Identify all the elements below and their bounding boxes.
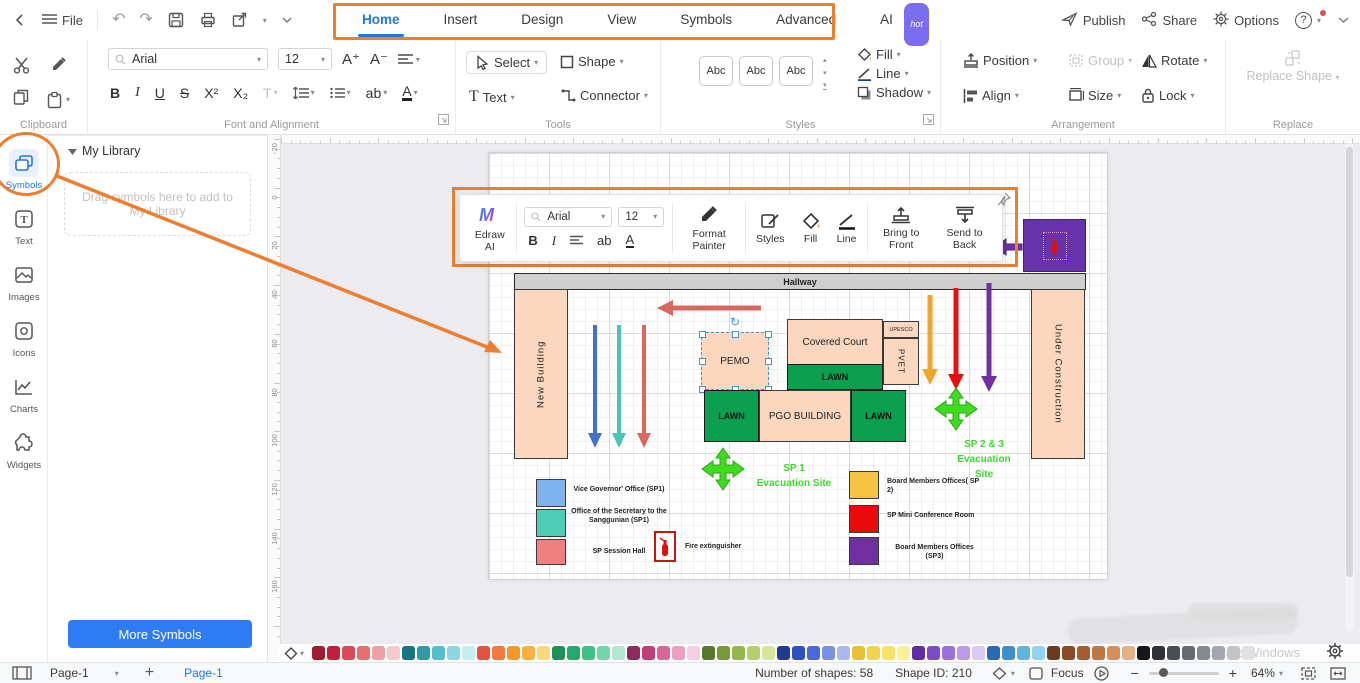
float-fill-button[interactable]: Fill — [793, 199, 829, 257]
shadow-button[interactable]: Shadow▾ — [857, 85, 931, 100]
subscript-button[interactable]: X₂ — [233, 85, 248, 101]
align-shapes-button[interactable]: Align▾ — [963, 88, 1019, 103]
hamburger-icon — [42, 13, 57, 28]
page-tab[interactable]: Page-1 — [184, 666, 223, 680]
fill-icon — [284, 647, 298, 660]
styles-expand-icon[interactable] — [923, 112, 934, 130]
collapse-window-icon[interactable] — [1337, 15, 1350, 25]
shape-id: Shape ID: 210 — [895, 666, 972, 680]
selection-handle[interactable] — [699, 358, 706, 365]
bring-to-front-icon — [890, 206, 912, 224]
horizontal-ruler — [281, 135, 1360, 144]
tab-view[interactable]: View — [585, 0, 658, 40]
selection-handle[interactable] — [699, 331, 706, 338]
legend-swatch-vice-governor[interactable] — [536, 479, 566, 507]
charts-icon — [9, 373, 39, 401]
font-section-label: Font and Alignment — [88, 119, 455, 131]
color-swatch[interactable] — [312, 646, 325, 660]
tools-section: Select▾ Shape▾ T Text▾ Connector▾ Tools — [456, 40, 661, 135]
images-icon — [9, 261, 39, 289]
color-swatch[interactable] — [417, 646, 430, 660]
color-swatch[interactable] — [612, 646, 625, 660]
rotate-handle-icon[interactable]: ↻ — [730, 315, 740, 329]
float-align-button[interactable] — [570, 232, 583, 250]
float-char-spacing-button[interactable]: ab — [597, 233, 611, 248]
top-bar: File ↶ ↷ ▾ Home Insert Design View Symbo… — [0, 0, 1360, 40]
pin-icon[interactable] — [997, 192, 1011, 211]
color-swatch[interactable] — [1017, 646, 1030, 660]
library-header[interactable]: My Library — [48, 136, 267, 158]
color-swatch[interactable] — [1227, 646, 1240, 660]
notification-dot — [1320, 10, 1326, 16]
export-caret-icon[interactable]: ▾ — [263, 16, 267, 25]
font-family-select[interactable]: Arial▾ — [108, 48, 268, 70]
color-swatch[interactable] — [927, 646, 940, 660]
color-swatch[interactable] — [1047, 646, 1060, 660]
style-scroll-up-icon[interactable]: ▴ — [823, 56, 827, 64]
sidebar-item-charts[interactable]: Charts — [0, 373, 48, 415]
arrow-salmon-down[interactable] — [636, 323, 652, 449]
legend-label-vice-governor: Vice Governor' Office (SP1) — [569, 485, 669, 494]
color-swatch[interactable] — [807, 646, 820, 660]
legend-swatch-secretary[interactable] — [536, 509, 566, 537]
align-icon — [963, 89, 978, 103]
page-overview-icon[interactable] — [12, 666, 32, 680]
color-swatch[interactable] — [852, 646, 865, 660]
replace-shape-button[interactable]: Replace Shape ▾ — [1226, 50, 1360, 85]
theme-icon[interactable]: ▾ — [992, 667, 1015, 680]
color-swatch[interactable] — [357, 646, 370, 660]
arrow-amber-down[interactable] — [921, 293, 939, 387]
page-select[interactable]: Page-1▾ — [50, 666, 119, 680]
shape-lawn-left[interactable]: LAWN — [704, 390, 759, 442]
color-swatch[interactable] — [507, 646, 520, 660]
zoom-slider-knob[interactable] — [1159, 668, 1168, 677]
selection-handle[interactable] — [732, 331, 739, 338]
replace-shape-icon — [1284, 50, 1302, 66]
color-swatch[interactable] — [672, 646, 685, 660]
shape-pemo-selected[interactable]: PEMO ↻ — [701, 332, 769, 390]
text-sp23-evacuation-site[interactable]: SP 2 & 3EvacuationSite — [929, 437, 1039, 482]
library-dropzone[interactable]: Drag symbols here to add to My Library — [64, 172, 251, 236]
hot-badge: hot — [904, 3, 929, 46]
arrow-blue-down[interactable] — [587, 323, 603, 449]
float-italic-button[interactable]: I — [552, 233, 556, 249]
color-swatch[interactable] — [1092, 646, 1105, 660]
color-swatch[interactable] — [387, 646, 400, 660]
superscript-button[interactable]: X² — [204, 85, 218, 101]
fill-button[interactable]: Fill▾ — [857, 47, 931, 62]
strikethrough-button[interactable]: S — [180, 85, 189, 101]
zoom-in-button[interactable]: + — [1229, 665, 1237, 681]
arrangement-section: Position▾ Group▾ Rotate▾ Align▾ Size▾ Lo… — [941, 40, 1226, 135]
replace-section: Replace Shape ▾ Replace — [1226, 40, 1360, 135]
align-button[interactable]: ▾ — [398, 53, 420, 65]
app-window: File ↶ ↷ ▾ Home Insert Design View Symbo… — [0, 0, 1360, 683]
file-menu[interactable]: File — [42, 13, 83, 28]
tab-symbols[interactable]: Symbols — [658, 0, 754, 40]
float-format-painter-button[interactable]: Format Painter — [675, 199, 743, 257]
color-swatch[interactable] — [402, 646, 415, 660]
sidebar-item-symbols[interactable]: Symbols — [0, 149, 48, 191]
publish-button[interactable]: Publish — [1061, 11, 1126, 30]
fit-page-icon[interactable] — [1301, 667, 1316, 680]
selection-handle[interactable] — [765, 358, 772, 365]
svg-text:M: M — [479, 205, 495, 225]
legend-label-fire-extinguisher: Fire extinguisher — [685, 542, 765, 551]
character-spacing-button[interactable]: ab▾ — [366, 85, 388, 101]
increase-font-button[interactable]: A⁺ — [342, 50, 360, 68]
color-swatch[interactable] — [342, 646, 355, 660]
fill-icon — [857, 48, 872, 62]
text-color-button[interactable]: T▾ — [263, 85, 278, 101]
legend-swatch-session-hall[interactable] — [536, 539, 566, 565]
color-swatch[interactable] — [627, 646, 640, 660]
vertical-ruler: -20020406080100120140160 — [268, 135, 281, 662]
arrow-red-down[interactable] — [947, 286, 965, 392]
connector-icon — [560, 88, 576, 103]
color-swatch[interactable] — [447, 646, 460, 660]
float-styles-button[interactable]: Styles — [748, 199, 793, 257]
tab-insert[interactable]: Insert — [422, 0, 500, 40]
underline-button[interactable]: U — [155, 85, 165, 101]
help-caret-icon: ▾ — [1317, 16, 1321, 25]
shape-icon — [560, 55, 574, 69]
color-swatch[interactable] — [957, 646, 970, 660]
color-swatch[interactable] — [642, 646, 655, 660]
style-more-icon[interactable]: ▾ — [823, 81, 827, 90]
tab-advanced[interactable]: Advanced — [754, 0, 858, 40]
text-icon: T — [9, 205, 39, 233]
tab-ai[interactable]: AIhot — [858, 0, 915, 40]
color-swatch[interactable] — [912, 646, 925, 660]
edraw-ai-button[interactable]: M Edraw AI — [466, 199, 514, 257]
styles-section: Abc Abc Abc ▴ ▾ ▾ Fill▾ Line▾ Shadow▾ St… — [661, 40, 941, 135]
legend-label-board-sp2: Board Members Offices( SP 2) — [887, 477, 982, 495]
rotate-icon — [1141, 54, 1157, 68]
zoom-out-button[interactable]: − — [1131, 665, 1139, 681]
color-swatch[interactable] — [597, 646, 610, 660]
status-bar: Page-1▾ + Page-1 Number of shapes: 58 Sh… — [0, 662, 1360, 683]
decrease-font-button[interactable]: A⁻ — [370, 50, 388, 68]
color-swatch[interactable] — [552, 646, 565, 660]
italic-button[interactable]: I — [135, 85, 140, 101]
color-swatch[interactable] — [942, 646, 955, 660]
print-icon[interactable] — [199, 11, 217, 29]
float-font-size-select[interactable]: 12▾ — [618, 207, 664, 227]
shape-lawn-strip[interactable]: LAWN — [787, 364, 883, 390]
select-tool[interactable]: Select▾ — [466, 51, 547, 74]
shape-tool[interactable]: Shape▾ — [560, 54, 624, 69]
color-swatch[interactable] — [537, 646, 550, 660]
line-icon — [837, 212, 857, 230]
color-swatch[interactable] — [1107, 646, 1120, 660]
redo-icon[interactable]: ↷ — [139, 12, 152, 28]
color-swatch[interactable] — [1122, 646, 1135, 660]
sidebar-item-images[interactable]: Images — [0, 261, 48, 303]
color-swatch[interactable] — [1002, 646, 1015, 660]
color-swatch[interactable] — [987, 646, 1000, 660]
share-button[interactable]: Share — [1141, 11, 1197, 30]
icons-icon — [9, 317, 39, 345]
save-icon[interactable] — [167, 11, 185, 29]
color-swatch[interactable] — [792, 646, 805, 660]
color-swatch[interactable] — [462, 646, 475, 660]
file-label: File — [62, 13, 83, 28]
color-swatch[interactable] — [747, 646, 760, 660]
line-spacing-button[interactable]: ▾ — [293, 87, 315, 99]
color-swatch[interactable] — [777, 646, 790, 660]
color-swatch[interactable] — [837, 646, 850, 660]
sidebar-item-widgets[interactable]: Widgets — [0, 429, 48, 471]
gear-icon — [1213, 11, 1229, 30]
bullet-list-button[interactable]: ▾ — [330, 87, 351, 99]
color-swatch[interactable] — [1032, 646, 1045, 660]
search-icon — [115, 54, 126, 65]
selection-handle[interactable] — [765, 331, 772, 338]
color-swatches — [312, 646, 1257, 660]
help-button[interactable]: ? ▾ — [1295, 12, 1321, 29]
color-swatch[interactable] — [867, 646, 880, 660]
connector-tool[interactable]: Connector▾ — [560, 88, 648, 103]
shape-covered-court[interactable]: Covered Court — [787, 319, 883, 366]
lock-button[interactable]: Lock▾ — [1141, 88, 1194, 103]
color-swatch[interactable] — [567, 646, 580, 660]
style-scroll-down-icon[interactable]: ▾ — [823, 69, 827, 77]
tab-home[interactable]: Home — [340, 0, 422, 40]
color-swatch[interactable] — [702, 646, 715, 660]
color-swatch[interactable] — [1212, 646, 1225, 660]
send-to-back-icon — [954, 206, 976, 224]
style-preset-2[interactable]: Abc — [739, 56, 773, 86]
line-icon — [857, 67, 872, 81]
shape-pvet[interactable]: PVET — [883, 338, 919, 385]
color-swatch[interactable] — [822, 646, 835, 660]
text-tool[interactable]: T Text▾ — [469, 88, 515, 106]
legend-label-board-sp3: Board Members Offices (SP3) — [887, 543, 982, 561]
shape-upesco[interactable]: UPESCO — [883, 321, 919, 338]
svg-text:T: T — [20, 214, 28, 226]
paste-button[interactable]: ▾ — [46, 91, 70, 109]
arrow-salmon-left[interactable] — [655, 299, 765, 317]
color-swatch[interactable] — [897, 646, 910, 660]
color-swatch[interactable] — [432, 646, 445, 660]
vertical-scrollbar-thumb[interactable] — [1346, 147, 1353, 577]
color-swatch[interactable] — [732, 646, 745, 660]
color-swatch[interactable] — [1242, 646, 1255, 660]
color-swatch[interactable] — [1167, 646, 1180, 660]
float-bold-button[interactable]: B — [528, 233, 537, 248]
style-preset-3[interactable]: Abc — [779, 56, 813, 86]
play-icon[interactable] — [1094, 666, 1109, 681]
legend-swatch-board-sp3[interactable] — [849, 537, 879, 565]
color-swatch[interactable] — [657, 646, 670, 660]
color-palette-bar: Activate Windows ▾ — [278, 644, 1360, 662]
color-swatch[interactable] — [687, 646, 700, 660]
float-send-back-button[interactable]: Send to Back — [933, 199, 996, 257]
float-line-button[interactable]: Line — [829, 199, 865, 257]
font-expand-icon[interactable] — [438, 112, 449, 130]
sidebar-item-text[interactable]: T Text — [0, 205, 48, 247]
font-section: Arial▾ 12▾ A⁺ A⁻ ▾ B I U S X² X₂ T▾ ▾ ▾ … — [88, 40, 456, 135]
float-font-color-button[interactable]: A — [626, 233, 635, 248]
color-swatch[interactable] — [327, 646, 340, 660]
shape-new-building[interactable]: New Building — [514, 289, 568, 459]
color-swatch[interactable] — [1137, 646, 1150, 660]
style-preset-1[interactable]: Abc — [699, 56, 733, 86]
vertical-scrollbar[interactable] — [1345, 143, 1354, 632]
legend-fire-extinguisher-icon[interactable] — [654, 531, 676, 562]
legend-swatch-conference[interactable] — [849, 505, 879, 533]
focus-label[interactable]: Focus — [1051, 666, 1084, 680]
bold-button[interactable]: B — [110, 85, 120, 101]
back-icon[interactable] — [12, 12, 28, 28]
copy-icon[interactable] — [12, 88, 30, 111]
ribbon: ▾ Clipboard Arial▾ 12▾ A⁺ A⁻ ▾ B I U S X… — [0, 40, 1360, 135]
float-bring-front-button[interactable]: Bring to Front — [869, 199, 933, 257]
clipboard-section: ▾ Clipboard — [0, 40, 88, 135]
cursor-icon — [475, 55, 490, 70]
tools-label: Tools — [456, 119, 660, 131]
sidebar-item-icons[interactable]: Icons — [0, 317, 48, 359]
options-button[interactable]: Options — [1213, 11, 1279, 30]
presentation-icon[interactable] — [1029, 667, 1043, 680]
divider — [97, 10, 98, 30]
library-panel: My Library Drag symbols here to add to M… — [48, 135, 268, 662]
tab-design[interactable]: Design — [499, 0, 585, 40]
color-swatch[interactable] — [492, 646, 505, 660]
legend-label-conference: SP Mini Conference Room — [887, 511, 982, 520]
edraw-ai-logo: M — [477, 204, 503, 226]
color-swatch[interactable] — [1077, 646, 1090, 660]
font-color-button[interactable]: A▾ — [402, 84, 417, 101]
shape-pgo-building[interactable]: PGO BUILDING — [759, 390, 851, 442]
shape-hallway[interactable]: Hallway — [514, 273, 1086, 290]
arrow-purple-down[interactable] — [980, 281, 998, 394]
shape-under-construction[interactable]: Under Construction — [1031, 289, 1085, 459]
color-swatch[interactable] — [522, 646, 535, 660]
shape-lawn-right[interactable]: LAWN — [851, 390, 906, 442]
fire-extinguisher-icon — [1043, 232, 1067, 260]
watermark-smudge-2 — [1188, 603, 1298, 619]
more-symbols-button[interactable]: More Symbols — [68, 620, 252, 648]
color-swatch[interactable] — [1062, 646, 1075, 660]
color-swatch[interactable] — [762, 646, 775, 660]
color-swatch[interactable] — [477, 646, 490, 660]
font-size-select[interactable]: 12▾ — [278, 48, 332, 70]
text-tool-icon: T — [469, 88, 479, 106]
clipboard-label: Clipboard — [0, 119, 87, 131]
symbols-icon — [9, 149, 39, 177]
color-swatch[interactable] — [1197, 646, 1210, 660]
size-button[interactable]: Size▾ — [1068, 88, 1121, 103]
color-swatch[interactable] — [582, 646, 595, 660]
color-swatch[interactable] — [1152, 646, 1165, 660]
shadow-icon — [857, 86, 872, 100]
styles-label: Styles — [661, 119, 940, 131]
legend-label-secretary: Office of the Secretary to the Sanggunia… — [569, 507, 669, 525]
cut-icon[interactable] — [12, 56, 32, 79]
text-sp1-evacuation-site[interactable]: SP 1Evacuation Site — [739, 461, 849, 491]
help-icon: ? — [1295, 12, 1312, 29]
lock-icon — [1141, 88, 1155, 103]
rotate-button[interactable]: Rotate▾ — [1141, 53, 1207, 68]
color-swatch[interactable] — [882, 646, 895, 660]
size-icon — [1068, 88, 1084, 103]
fit-width-icon[interactable] — [1330, 667, 1346, 680]
color-swatch[interactable] — [972, 646, 985, 660]
quick-fill-button[interactable]: ▾ — [284, 647, 304, 660]
shape-purple-room[interactable] — [1023, 219, 1086, 272]
format-painter-icon[interactable] — [50, 56, 70, 79]
line-button[interactable]: Line▾ — [857, 66, 931, 81]
replace-label: Replace — [1226, 119, 1360, 131]
fill-icon — [801, 212, 821, 230]
color-swatch[interactable] — [372, 646, 385, 660]
widgets-icon — [9, 429, 39, 457]
library-title: My Library — [82, 144, 140, 158]
arrangement-label: Arrangement — [941, 119, 1225, 131]
float-font-family-select[interactable]: Arial▾ — [524, 207, 612, 227]
floating-toolbar-highlight: M Edraw AI Arial▾ 12▾ B I ab A — [452, 187, 1018, 267]
styles-icon — [760, 212, 780, 230]
evacuation-cross-arrow-right[interactable] — [933, 386, 979, 432]
left-icon-rail: Symbols T Text Images Icons Charts Widge… — [0, 135, 48, 662]
floating-toolbar: M Edraw AI Arial▾ 12▾ B I ab A — [459, 194, 1003, 262]
search-icon — [531, 212, 541, 222]
shapes-count: Number of shapes: 58 — [755, 666, 873, 680]
canvas-area[interactable]: -20020406080100120140160 Hallway New Bui… — [268, 135, 1360, 662]
color-swatch[interactable] — [717, 646, 730, 660]
zoom-slider[interactable] — [1149, 672, 1219, 675]
paste-caret-icon: ▾ — [66, 95, 70, 104]
collapse-triangle-icon — [68, 148, 77, 155]
publish-icon — [1061, 11, 1078, 30]
share-icon — [1141, 11, 1157, 30]
menu-tabs: Home Insert Design View Symbols Advanced… — [340, 0, 915, 40]
group-button[interactable]: Group▾ — [1068, 53, 1132, 68]
zoom-level[interactable]: 64%▾ — [1251, 666, 1283, 680]
color-swatch[interactable] — [1182, 646, 1195, 660]
undo-icon[interactable]: ↶ — [112, 12, 125, 28]
add-page-button[interactable]: + — [145, 664, 154, 682]
export-icon[interactable] — [231, 11, 249, 29]
legend-swatch-board-sp2[interactable] — [849, 471, 879, 499]
collapse-toolbar-icon[interactable] — [281, 15, 293, 25]
position-icon — [963, 53, 979, 68]
position-button[interactable]: Position▾ — [963, 53, 1037, 68]
arrow-teal-down[interactable] — [611, 323, 627, 449]
format-painter-icon — [698, 205, 720, 225]
group-icon — [1068, 53, 1084, 68]
pemo-label: PEMO — [720, 356, 749, 367]
